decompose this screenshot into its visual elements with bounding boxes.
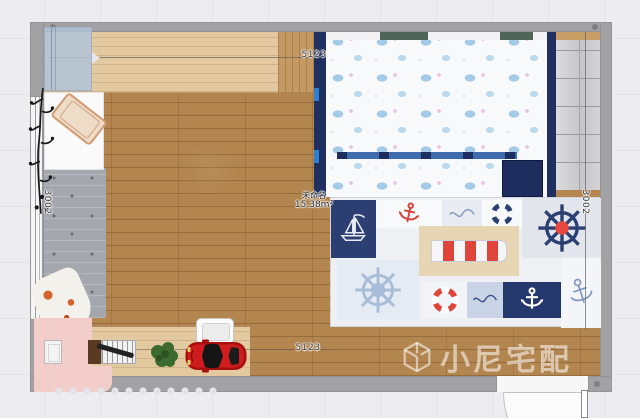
rope-knot-icon	[447, 207, 477, 222]
wall-bottom-right[interactable]	[588, 376, 612, 392]
wall-corner-dot	[594, 381, 600, 387]
watermark-text: 小尼宅配	[440, 335, 572, 379]
anchor-icon	[561, 272, 601, 315]
rug-patch-knot	[442, 200, 482, 228]
nautical-rug[interactable]	[330, 197, 600, 327]
watermark: 小尼宅配	[400, 335, 572, 379]
rug-patch-anchor-sketch	[561, 258, 601, 328]
toy-car[interactable]	[184, 338, 248, 378]
lighthouse-icon	[431, 240, 507, 262]
wardrobe-top-trim	[556, 32, 600, 40]
rug-patch-red-anchor	[376, 200, 442, 228]
dimension-label-left: 3002	[42, 188, 52, 216]
floorplan-canvas: 5123 5123 3002 3002 未命名 15.38m² 小尼宅配	[0, 0, 640, 418]
dimension-label-bottom: 5123	[290, 343, 326, 353]
dimension-line-right	[585, 32, 586, 330]
staircase[interactable]	[88, 340, 136, 364]
potted-plant[interactable]	[150, 340, 180, 372]
wardrobe-shelves	[556, 40, 600, 190]
desk-panel-line	[55, 28, 56, 90]
wall-corner-dot	[592, 24, 598, 30]
desk-panel[interactable]	[44, 27, 92, 91]
wall-top[interactable]	[30, 22, 612, 32]
bed-rail-tab	[314, 88, 319, 101]
rope-knot-icon	[471, 293, 499, 307]
anchor-icon	[518, 286, 546, 314]
stool[interactable]	[44, 340, 62, 364]
corner-cabinet[interactable]	[278, 32, 314, 92]
bed-rail-right	[547, 32, 556, 197]
rug-patch-knot-2	[467, 282, 503, 318]
bed-foot-bar	[337, 152, 517, 159]
wardrobe-divider	[579, 40, 580, 190]
stool-inner-line	[48, 344, 60, 362]
wall-right[interactable]	[600, 22, 612, 392]
rug-patch-navy-anchor	[503, 282, 561, 318]
room-area: 15.38m²	[288, 200, 340, 210]
anchor-icon	[394, 200, 425, 228]
lifebuoy-icon	[489, 201, 515, 227]
desk-panel-line	[51, 28, 52, 90]
rug-patch-red-lifebuoy	[423, 282, 467, 318]
door-leaf[interactable]	[581, 390, 588, 418]
ship-wheel-icon	[352, 264, 404, 316]
door-swing-arc	[503, 392, 586, 418]
wardrobe[interactable]	[556, 32, 600, 197]
sailboat-icon	[336, 211, 372, 247]
nightstand[interactable]	[502, 160, 543, 197]
desk-panel-arrow	[92, 52, 100, 64]
room-name: 未命名	[288, 191, 340, 200]
wardrobe-bottom-trim	[556, 190, 600, 197]
headboard-block	[500, 32, 533, 40]
lifebuoy-icon	[430, 285, 460, 315]
rug-patch-pale-wheel	[337, 260, 419, 320]
rug-fringe	[52, 386, 220, 399]
bed-rail-tab	[314, 150, 319, 163]
headboard-block	[380, 32, 428, 40]
dimension-label-top: 5123	[296, 50, 332, 60]
cube-logo-icon	[400, 340, 434, 374]
room-label[interactable]: 未命名 15.38m²	[288, 191, 340, 211]
rug-patch-lighthouse	[419, 226, 519, 276]
dimension-label-right: 3002	[580, 188, 590, 216]
rug-patch-lifebuoy	[482, 200, 522, 228]
